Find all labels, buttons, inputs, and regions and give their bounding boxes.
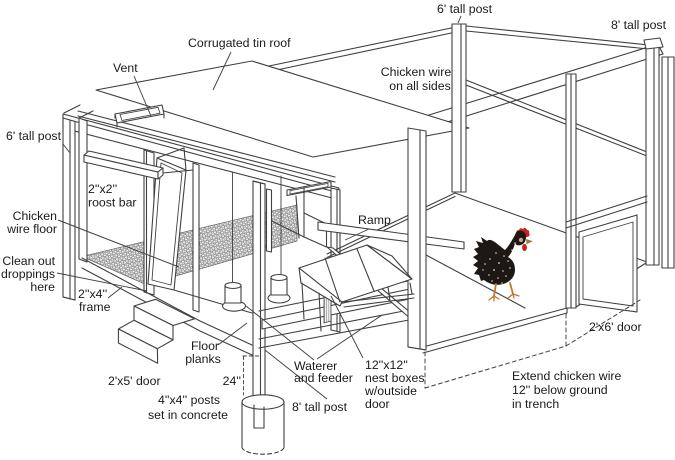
- svg-text:here: here: [30, 280, 55, 294]
- svg-text:8' tall post: 8' tall post: [611, 18, 667, 32]
- svg-text:6' tall post: 6' tall post: [437, 2, 493, 16]
- svg-text:set in concrete: set in concrete: [148, 408, 228, 422]
- svg-text:on all sides: on all sides: [389, 79, 451, 93]
- svg-text:2'x5' door: 2'x5' door: [108, 374, 161, 388]
- svg-text:2''x4'': 2''x4'': [78, 287, 107, 301]
- svg-text:Chicken wire: Chicken wire: [381, 65, 452, 79]
- svg-text:w/outside: w/outside: [364, 384, 417, 398]
- svg-text:door: door: [365, 397, 390, 411]
- svg-text:Extend chicken wire: Extend chicken wire: [512, 369, 622, 383]
- svg-text:6' tall post: 6' tall post: [6, 129, 62, 143]
- svg-text:Floor: Floor: [191, 339, 219, 353]
- svg-text:and feeder: and feeder: [294, 371, 353, 385]
- svg-text:8' tall post: 8' tall post: [292, 400, 348, 414]
- svg-text:wire floor: wire floor: [6, 222, 57, 236]
- svg-text:12'' below ground: 12'' below ground: [512, 383, 608, 397]
- svg-text:2'x6' door: 2'x6' door: [589, 320, 642, 334]
- svg-text:Corrugated tin roof: Corrugated tin roof: [188, 36, 291, 50]
- svg-text:droppings: droppings: [1, 267, 55, 281]
- svg-text:nest boxes: nest boxes: [365, 371, 424, 385]
- svg-text:2''x2'': 2''x2'': [88, 182, 117, 196]
- svg-text:4''x4'' posts: 4''x4'' posts: [158, 393, 220, 407]
- svg-text:Chicken: Chicken: [13, 209, 58, 223]
- svg-text:roost bar: roost bar: [88, 196, 137, 210]
- svg-text:12''x12'': 12''x12'': [365, 358, 408, 372]
- svg-text:frame: frame: [79, 300, 111, 314]
- svg-text:Clean out: Clean out: [2, 254, 55, 268]
- svg-text:Vent: Vent: [113, 61, 138, 75]
- svg-text:Ramp: Ramp: [358, 213, 391, 227]
- svg-text:24'': 24'': [223, 374, 241, 388]
- svg-text:planks: planks: [185, 352, 221, 366]
- svg-text:in trench: in trench: [512, 397, 559, 411]
